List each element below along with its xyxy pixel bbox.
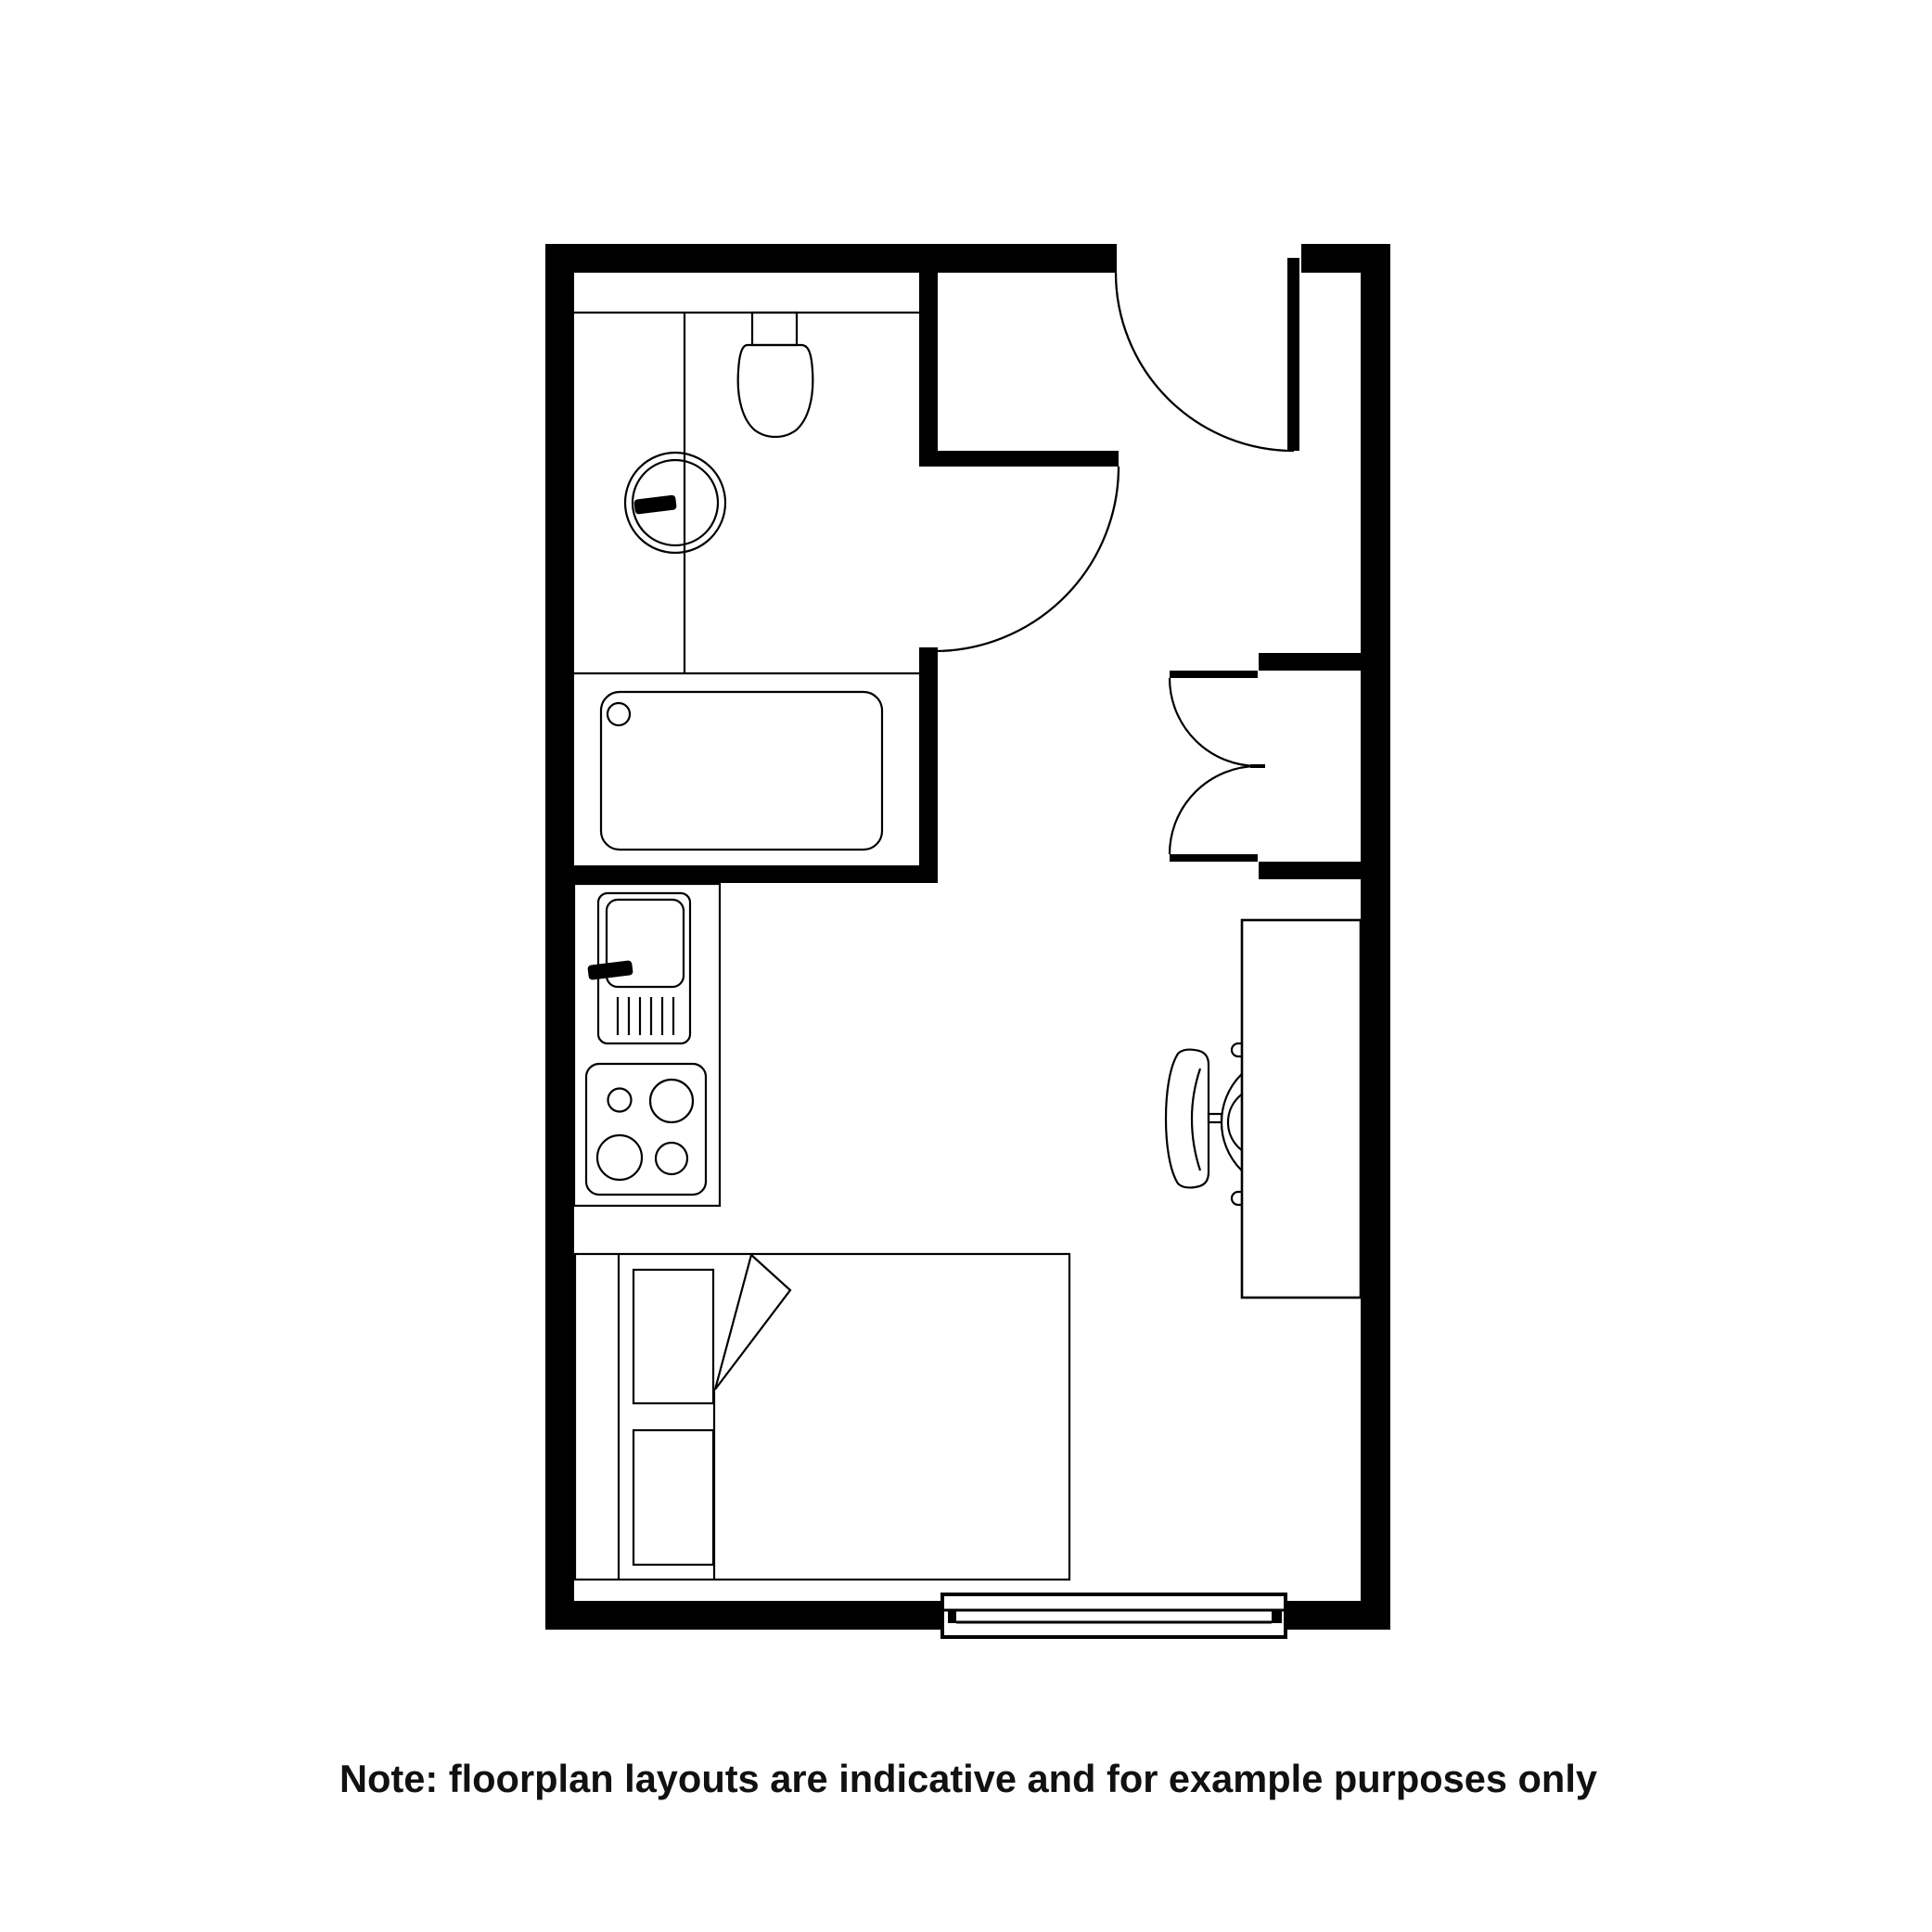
svg-text:Note: floorplan layouts are in: Note: floorplan layouts are indicative a…: [339, 1757, 1598, 1800]
